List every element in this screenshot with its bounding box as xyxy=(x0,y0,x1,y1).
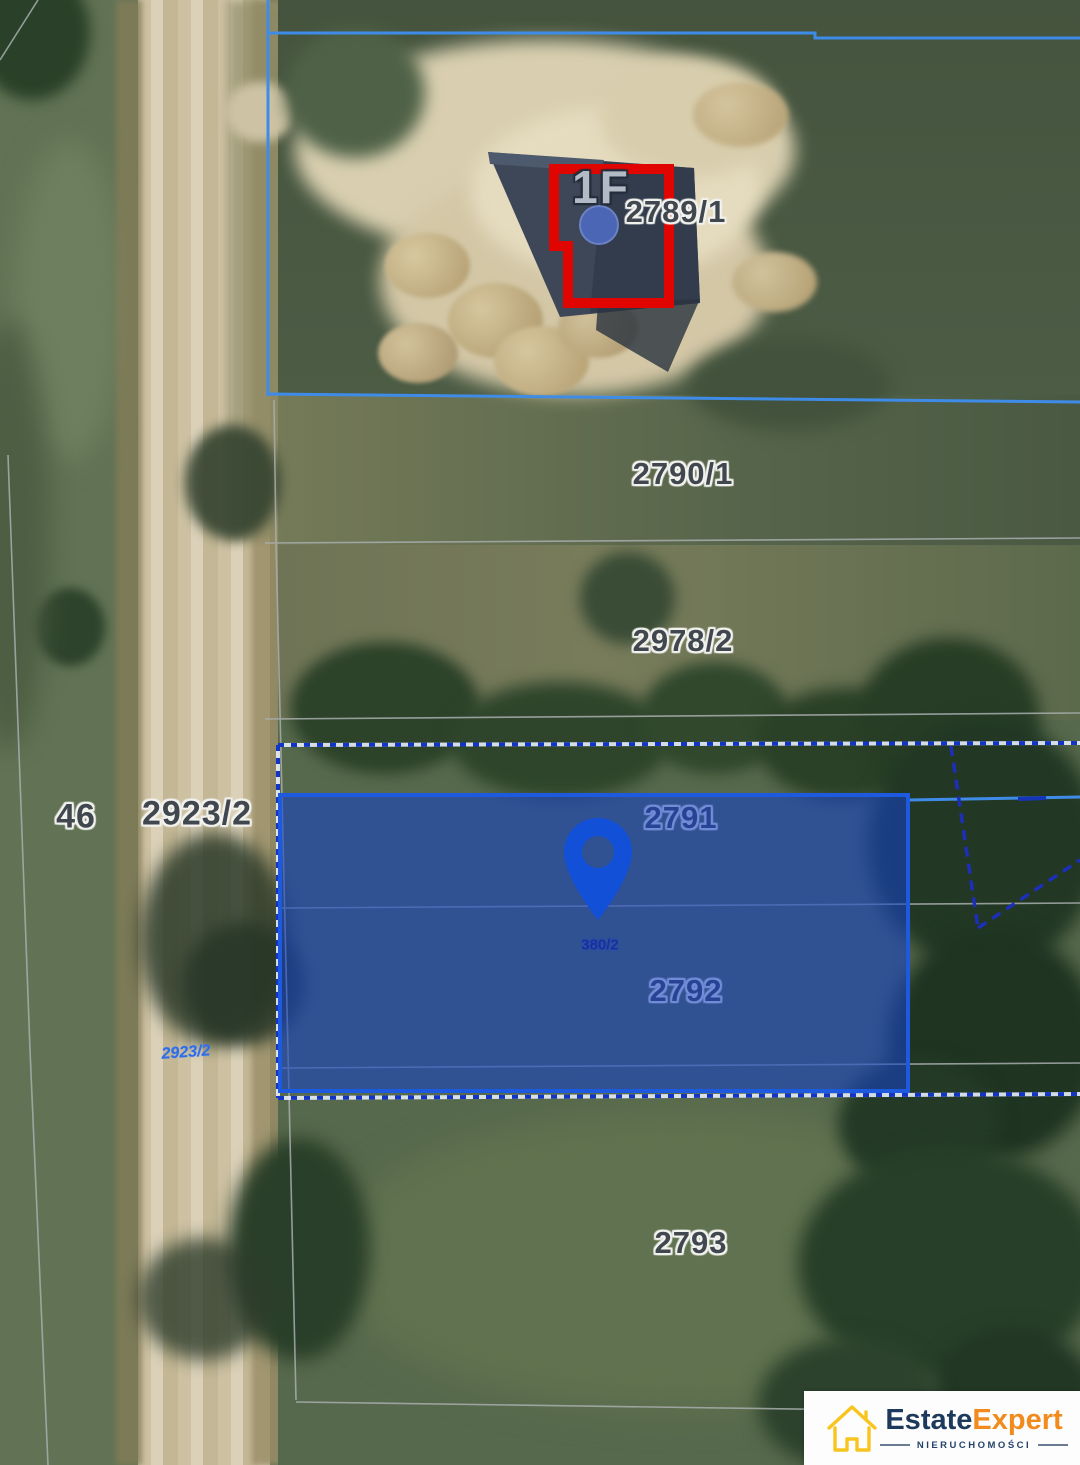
estateexpert-logo: EstateExpert NIERUCHOMOŚCI xyxy=(804,1391,1080,1465)
parcel-label-46: 46 xyxy=(56,798,96,837)
pin-parcel-small-label: 380/2 xyxy=(581,937,619,954)
house-icon xyxy=(826,1403,878,1453)
building-shadow xyxy=(596,299,700,372)
parcel-boundary-navy-dash xyxy=(1018,798,1046,799)
parcel-label-2923-2: 2923/2 xyxy=(142,795,252,834)
parcel-label-2789-1: 2789/1 xyxy=(626,194,727,230)
tagline-dash xyxy=(1038,1444,1068,1446)
road-parcel-small-label: 2923/2 xyxy=(161,1042,211,1063)
building-floor-label: 1F xyxy=(572,160,630,214)
dashed-boundary xyxy=(978,860,1080,928)
cadastral-line xyxy=(265,713,1080,719)
parcel-boundary-blue xyxy=(268,394,1080,402)
cadastral-line xyxy=(265,538,1080,543)
parcel-boundary-blue xyxy=(908,797,1080,800)
cadastral-overlay xyxy=(0,0,1080,1465)
map-canvas[interactable]: 2791 2792 xyxy=(0,0,1080,1465)
parcel-label-2978-2: 2978/2 xyxy=(633,623,734,659)
parcel-boundary-blue xyxy=(268,33,1080,38)
dashed-boundary xyxy=(951,746,978,928)
logo-tagline-row: NIERUCHOMOŚCI xyxy=(880,1440,1068,1451)
cadastral-line xyxy=(8,455,48,1465)
logo-brand-secondary: Expert xyxy=(972,1404,1062,1436)
logo-text: EstateExpert NIERUCHOMOŚCI xyxy=(878,1406,1070,1451)
logo-brand-primary: Estate xyxy=(885,1404,972,1436)
parcel-label-2793: 2793 xyxy=(655,1225,728,1261)
cadastral-line xyxy=(0,0,38,60)
parcel-label-2790-1: 2790/1 xyxy=(633,456,734,492)
logo-brand: EstateExpert xyxy=(885,1406,1062,1435)
logo-tagline: NIERUCHOMOŚCI xyxy=(917,1440,1031,1451)
tagline-dash xyxy=(880,1444,910,1446)
